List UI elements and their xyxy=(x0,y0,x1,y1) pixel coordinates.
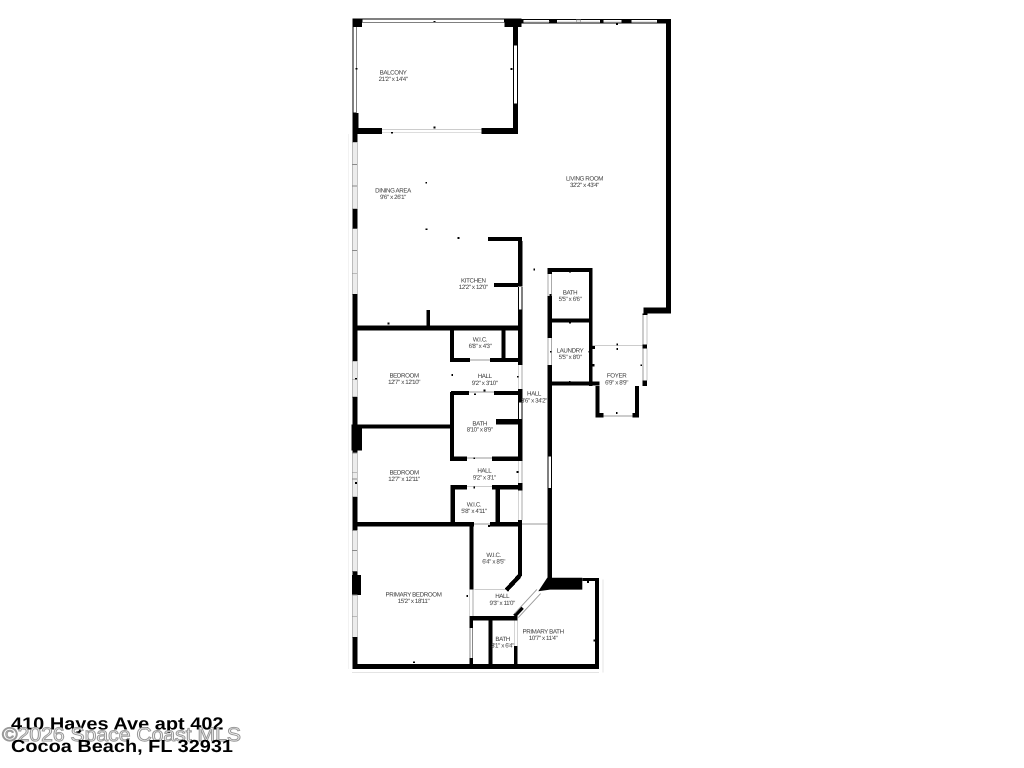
svg-text:21'2" x 14'4": 21'2" x 14'4" xyxy=(379,76,408,83)
svg-text:5'5" x 8'0": 5'5" x 8'0" xyxy=(559,354,582,361)
svg-text:9'2" x 3'10": 9'2" x 3'10" xyxy=(472,380,498,387)
svg-text:9'6" x 26'1": 9'6" x 26'1" xyxy=(380,194,406,201)
svg-text:15'2" x 18'11": 15'2" x 18'11" xyxy=(398,598,430,605)
svg-text:12'7" x 12'11": 12'7" x 12'11" xyxy=(388,476,420,483)
svg-text:9'2" x 3'1": 9'2" x 3'1" xyxy=(473,474,496,481)
svg-text:9'3" x 11'0": 9'3" x 11'0" xyxy=(489,600,515,607)
svg-text:6'4" x 8'5": 6'4" x 8'5" xyxy=(482,558,505,565)
svg-text:3'6" x 34'2": 3'6" x 34'2" xyxy=(521,397,547,404)
svg-text:6'9" x 8'9": 6'9" x 8'9" xyxy=(605,379,628,386)
svg-text:5'8" x 4'11": 5'8" x 4'11" xyxy=(461,508,487,515)
svg-text:Cocoa Beach, FL 32931: Cocoa Beach, FL 32931 xyxy=(11,736,233,756)
svg-text:5'5" x 6'6": 5'5" x 6'6" xyxy=(559,296,582,303)
svg-text:6'8" x 4'3": 6'8" x 4'3" xyxy=(469,343,492,350)
svg-text:32'2" x 43'4": 32'2" x 43'4" xyxy=(570,182,599,189)
svg-text:12'2" x 12'0": 12'2" x 12'0" xyxy=(459,284,488,291)
svg-text:12'7" x 12'10": 12'7" x 12'10" xyxy=(388,379,420,386)
svg-text:10'7" x 11'4": 10'7" x 11'4" xyxy=(529,635,558,642)
svg-text:3'1" x 6'4": 3'1" x 6'4" xyxy=(491,642,514,649)
svg-text:8'10" x 8'9": 8'10" x 8'9" xyxy=(467,426,493,433)
